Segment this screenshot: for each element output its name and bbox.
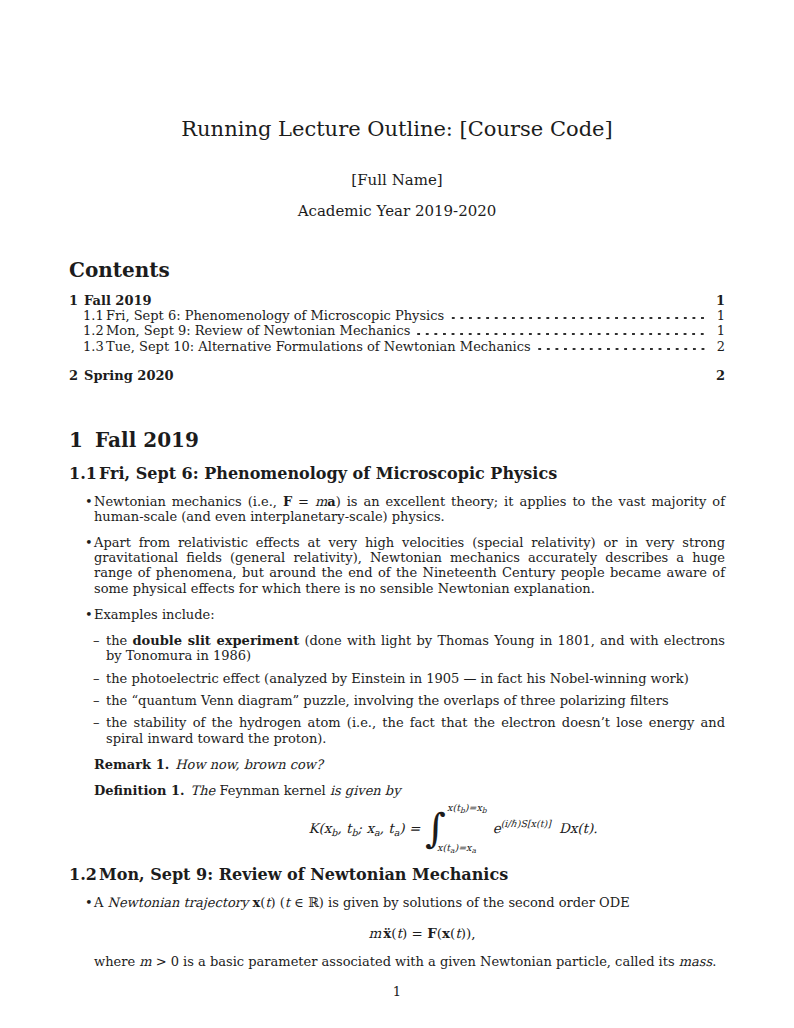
subsection-title: Mon, Sept 9: Review of Newtonian Mechani…	[99, 865, 508, 885]
bullet-icon: •	[85, 607, 94, 622]
list-item: • Newtonian mechanics (i.e., F = ma) is …	[69, 494, 725, 525]
toc-number: 2	[69, 368, 84, 383]
list-subitem-text: the “quantum Venn diagram” puzzle, invol…	[106, 693, 725, 708]
list-item-text: Apart from relativistic effects at very …	[94, 535, 725, 596]
toc-entry-fall-2019[interactable]: 1 Fall 2019 1	[69, 293, 725, 308]
document-page: Running Lecture Outline: [Course Code] […	[0, 0, 794, 1028]
dash-icon: –	[93, 693, 106, 708]
toc-leader-dots	[536, 339, 709, 354]
list-item: • Apart from relativistic effects at ver…	[69, 535, 725, 596]
bullet-icon: •	[85, 535, 94, 596]
toc-label: Mon, Sept 9: Review of Newtonian Mechani…	[106, 323, 410, 338]
toc-entry-1-2[interactable]: 1.2 Mon, Sept 9: Review of Newtonian Mec…	[69, 323, 725, 338]
contents-heading: Contents	[69, 258, 725, 282]
list-item-text: Newtonian mechanics (i.e., F = ma) is an…	[94, 494, 725, 525]
toc-page-number: 1	[715, 308, 725, 323]
remark-body: How now, brown cow?	[175, 757, 323, 772]
toc-entry-spring-2020[interactable]: 2 Spring 2020 2	[69, 368, 725, 383]
section-number: 1	[69, 428, 95, 452]
list-item: • Examples include:	[69, 607, 725, 622]
toc-leader-dots	[415, 323, 709, 338]
dash-icon: –	[93, 633, 106, 664]
toc-leader-dots	[449, 308, 709, 323]
toc-label: Fall 2019	[84, 293, 152, 308]
list-subitem-text: the double slit experiment (done with li…	[106, 633, 725, 664]
bullet-icon: •	[85, 494, 94, 525]
subsection-heading-1-1: 1.1 Fri, Sept 6: Phenomenology of Micros…	[69, 464, 725, 484]
document-author: [Full Name]	[69, 171, 725, 189]
section-title: Fall 2019	[95, 428, 199, 452]
subsection-heading-1-2: 1.2 Mon, Sept 9: Review of Newtonian Mec…	[69, 865, 725, 885]
subsection-number: 1.1	[69, 464, 99, 484]
definition-label: Definition 1.	[94, 783, 191, 798]
path-measure-term: Dx(t).	[559, 820, 598, 836]
document-date: Academic Year 2019-2020	[69, 202, 725, 220]
toc-leader	[157, 293, 709, 308]
list-subitem: – the “quantum Venn diagram” puzzle, inv…	[69, 693, 725, 708]
document-title: Running Lecture Outline: [Course Code]	[69, 0, 725, 142]
toc-page-number: 1	[715, 293, 725, 308]
list-subitem-text: the photoelectric effect (analyzed by Ei…	[106, 671, 725, 686]
toc-page-number: 2	[715, 339, 725, 354]
toc-number: 1.1	[83, 308, 106, 323]
remark-label: Remark 1.	[94, 757, 175, 772]
toc-label: Tue, Sept 10: Alternative Formulations o…	[106, 339, 531, 354]
integral-upper-limit: x(tb)=xb	[447, 803, 487, 813]
toc-label: Spring 2020	[84, 368, 174, 383]
list-subitem-text: the stability of the hydrogen atom (i.e.…	[106, 715, 725, 746]
equation-lhs: K(xb, tb; xa, ta) =	[308, 820, 420, 836]
list-subitem: – the photoelectric effect (analyzed by …	[69, 671, 725, 686]
document-content: Running Lecture Outline: [Course Code] […	[69, 0, 725, 969]
bullet-icon: •	[85, 895, 94, 910]
toc-entry-1-3[interactable]: 1.3 Tue, Sept 10: Alternative Formulatio…	[69, 339, 725, 354]
continuation-paragraph: where m > 0 is a basic parameter associa…	[94, 954, 725, 969]
dash-icon: –	[93, 715, 106, 746]
toc-page-number: 2	[715, 368, 725, 383]
toc-entry-1-1[interactable]: 1.1 Fri, Sept 6: Phenomenology of Micros…	[69, 308, 725, 323]
list-subitem: – the stability of the hydrogen atom (i.…	[69, 715, 725, 746]
exponential-term: e(i/ℏ)S[x(t)]	[493, 820, 551, 836]
list-item-text: Examples include:	[94, 607, 725, 622]
toc-number: 1	[69, 293, 84, 308]
subsection-title: Fri, Sept 6: Phenomenology of Microscopi…	[99, 464, 557, 484]
toc-number: 1.3	[83, 339, 106, 354]
page-number: 1	[0, 984, 794, 999]
integral-lower-limit: x(ta)=xa	[437, 843, 487, 853]
section-heading-fall-2019: 1 Fall 2019	[69, 428, 725, 452]
table-of-contents: 1 Fall 2019 1 1.1 Fri, Sept 6: Phenomeno…	[69, 293, 725, 383]
definition-block: Definition 1.The Feynman kernel is given…	[94, 783, 725, 798]
remark-block: Remark 1.How now, brown cow?	[94, 757, 725, 772]
toc-leader	[179, 368, 709, 383]
list-item-text: A Newtonian trajectory x(t) (t ∈ ℝ) is g…	[94, 895, 725, 910]
feynman-kernel-equation: K(xb, tb; xa, ta) = ∫ x(tb)=xb x(ta)=xa …	[69, 800, 725, 856]
integral-limits: x(tb)=xb x(ta)=xa	[446, 803, 487, 853]
toc-page-number: 1	[715, 323, 725, 338]
list-item: • A Newtonian trajectory x(t) (t ∈ ℝ) is…	[69, 895, 725, 910]
toc-number: 1.2	[83, 323, 106, 338]
dash-icon: –	[93, 671, 106, 686]
path-integral: ∫ x(tb)=xb x(ta)=xa	[425, 802, 486, 854]
subsection-number: 1.2	[69, 865, 99, 885]
newton-second-law-equation: mẍ(t) = F(x(t)),	[69, 923, 725, 943]
list-subitem: – the double slit experiment (done with …	[69, 633, 725, 664]
toc-label: Fri, Sept 6: Phenomenology of Microscopi…	[106, 308, 444, 323]
